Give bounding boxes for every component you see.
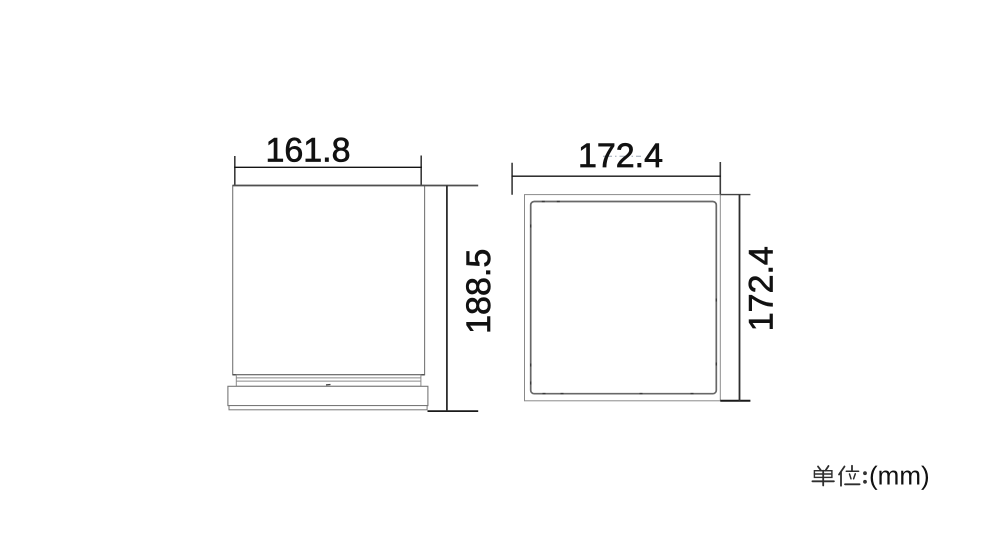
- svg-text:188.5: 188.5: [460, 249, 498, 334]
- svg-text:172.4: 172.4: [578, 137, 663, 175]
- svg-text:172.4: 172.4: [742, 246, 780, 331]
- svg-text:161.8: 161.8: [265, 131, 350, 169]
- svg-text:(mm): (mm): [869, 461, 930, 491]
